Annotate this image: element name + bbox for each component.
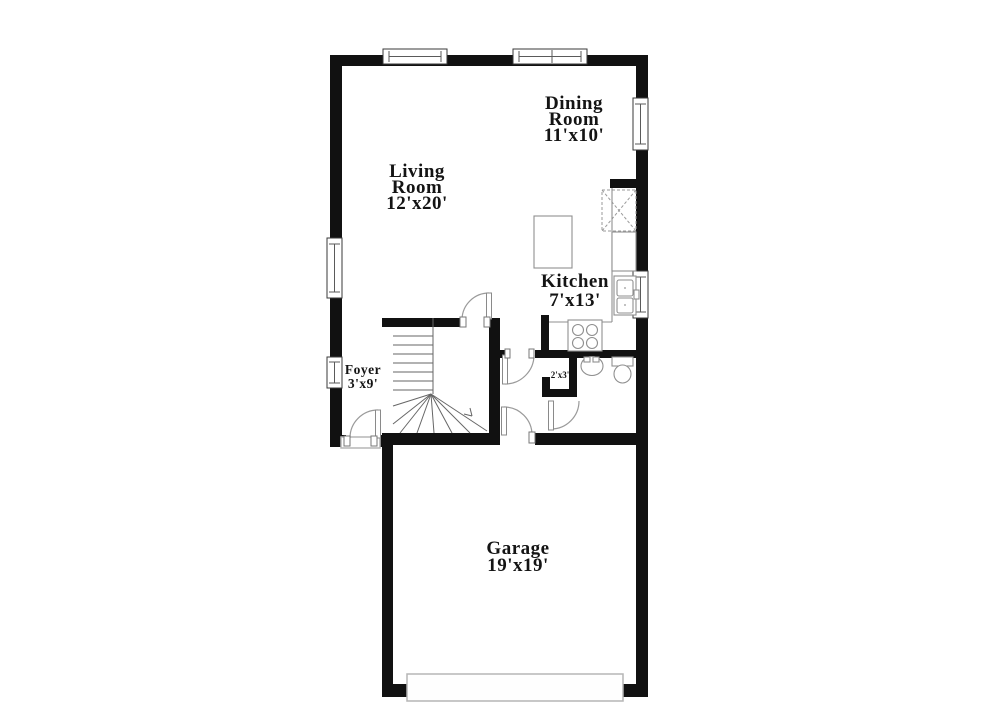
room-label-dining: Dining Room 11'x10' <box>544 93 605 146</box>
pantry-closet <box>602 190 636 231</box>
door-garage-entry <box>502 407 536 443</box>
floor-plan-canvas: Living Room 12'x20' Dining Room 11'x10' … <box>0 0 1000 727</box>
garage-overhead-door <box>407 674 623 701</box>
room-label-foyer: Foyer 3'x9' <box>345 362 381 391</box>
foyer-name: Foyer <box>345 362 381 377</box>
stair-winders <box>393 394 487 433</box>
wall-stair-hall-right <box>489 318 500 435</box>
refrigerator <box>612 232 636 271</box>
window-dining-right <box>633 98 648 150</box>
toilet <box>612 357 633 383</box>
floor-plan: Living Room 12'x20' Dining Room 11'x10' … <box>0 0 1000 727</box>
wall-top <box>330 55 648 66</box>
door-powder-room <box>549 401 580 430</box>
wall-garage-bottom-left <box>382 684 408 697</box>
kitchen-dims: 7'x13' <box>549 290 601 311</box>
wall-garage-top-left <box>382 433 500 445</box>
closet-dims: 2'x3' <box>551 370 570 380</box>
kitchen-island <box>534 216 572 268</box>
stove <box>568 320 602 351</box>
door-kitchen-to-hall <box>503 349 535 384</box>
window-dining-top <box>513 49 587 64</box>
wall-garage-bottom-right <box>622 684 648 697</box>
foyer-dims: 3'x9' <box>348 376 378 391</box>
garage-dims: 19'x19' <box>487 555 549 576</box>
stair-treads <box>393 336 433 390</box>
window-living-left <box>327 238 342 298</box>
window-living-top <box>383 49 447 64</box>
wall-garage-left <box>382 435 393 697</box>
window-foyer-left <box>327 357 342 388</box>
wall-right <box>636 55 648 697</box>
kitchen-name: Kitchen <box>541 271 609 292</box>
wall-closet-right <box>569 358 577 397</box>
staircase <box>393 318 487 433</box>
stair-direction-arrow <box>464 408 472 416</box>
faucet <box>634 290 639 299</box>
room-label-garage: Garage 19'x19' <box>486 538 549 576</box>
front-door <box>341 410 381 448</box>
wall-dining-kitchen-jut <box>610 179 648 188</box>
room-label-closet: 2'x3' <box>551 370 570 380</box>
bathroom-sink <box>581 357 603 376</box>
kitchen-sink <box>614 276 639 315</box>
wall-stairwell-top <box>382 318 461 327</box>
wall-counter-end <box>541 315 549 358</box>
door-living-to-hall <box>460 293 492 327</box>
room-label-kitchen: Kitchen 7'x13' <box>541 271 609 311</box>
room-label-living: Living Room 12'x20' <box>386 161 448 214</box>
living-room-dims: 12'x20' <box>386 193 448 214</box>
wall-garage-top-right <box>535 433 648 445</box>
dining-room-dims: 11'x10' <box>544 125 605 146</box>
powder-room-fixtures <box>581 357 633 384</box>
kitchen-fixtures <box>534 188 639 351</box>
